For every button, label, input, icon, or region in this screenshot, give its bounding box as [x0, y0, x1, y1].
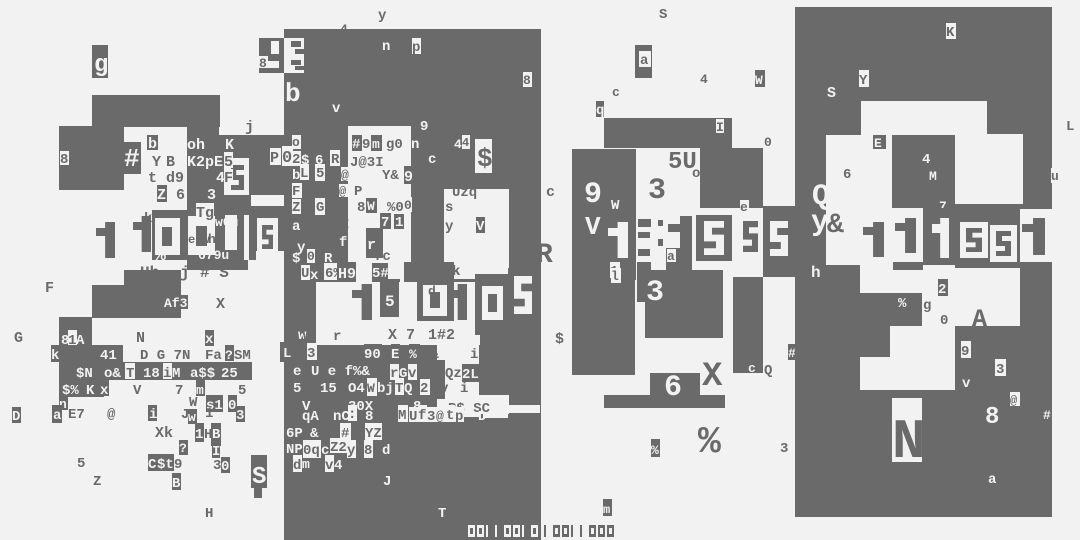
svg-text:%: %	[698, 421, 721, 464]
svg-text:S: S	[252, 464, 266, 491]
svg-text:R: R	[331, 152, 340, 168]
svg-text:#: #	[1043, 408, 1051, 423]
svg-text:G: G	[316, 200, 324, 216]
svg-text:Q: Q	[764, 363, 772, 379]
svg-text:?: ?	[225, 348, 233, 363]
svg-text:$t: $t	[157, 457, 174, 473]
svg-text:Fa: Fa	[205, 348, 222, 364]
svg-text:M: M	[172, 366, 180, 382]
svg-text:S: S	[827, 85, 836, 102]
svg-text:3: 3	[427, 409, 435, 425]
svg-text:%: %	[898, 296, 907, 312]
svg-text:3: 3	[648, 174, 666, 208]
svg-text:m: m	[603, 503, 610, 517]
svg-text:?: ?	[179, 441, 187, 456]
svg-text:0: 0	[764, 135, 772, 150]
svg-text:4: 4	[334, 458, 342, 474]
svg-text:K: K	[946, 25, 955, 41]
svg-text:v: v	[962, 376, 971, 392]
svg-text:8: 8	[357, 200, 365, 216]
svg-text:Z: Z	[93, 474, 101, 490]
svg-text:6: 6	[340, 201, 348, 217]
svg-text:SM: SM	[234, 348, 251, 364]
svg-text:H9: H9	[338, 266, 356, 283]
svg-text:3: 3	[207, 187, 216, 204]
svg-text:x: x	[205, 332, 214, 348]
svg-text:f: f	[418, 408, 426, 424]
svg-text:R: R	[536, 240, 553, 271]
svg-text:T: T	[395, 381, 403, 397]
svg-text:G: G	[14, 330, 23, 347]
svg-text:b: b	[148, 136, 157, 153]
svg-text:j: j	[245, 119, 254, 136]
svg-text:$: $	[555, 331, 564, 348]
svg-text:Z: Z	[157, 187, 166, 204]
svg-text:@: @	[107, 407, 116, 423]
svg-text:o: o	[692, 166, 700, 182]
svg-text:8: 8	[259, 56, 267, 71]
svg-text:B: B	[212, 427, 221, 443]
svg-text:y: y	[378, 8, 387, 24]
svg-text:D G 7N: D G 7N	[140, 348, 190, 364]
svg-text:g: g	[94, 52, 108, 79]
svg-text:q: q	[596, 103, 604, 119]
svg-text:W: W	[367, 381, 375, 396]
svg-text:9: 9	[404, 169, 413, 186]
svg-text:u: u	[1051, 169, 1059, 184]
svg-text:i: i	[460, 381, 468, 397]
svg-text:c: c	[748, 361, 756, 376]
svg-text:j: j	[180, 264, 190, 282]
svg-text:5: 5	[316, 166, 324, 182]
svg-text:V: V	[585, 212, 601, 242]
svg-text:n: n	[411, 137, 419, 153]
svg-text:K: K	[86, 383, 95, 399]
svg-text:5: 5	[238, 383, 246, 399]
svg-text:y: y	[347, 443, 356, 459]
svg-text:oh: oh	[187, 137, 205, 154]
svg-text:4: 4	[462, 136, 469, 150]
svg-text:Xk: Xk	[155, 425, 173, 442]
svg-text:L: L	[300, 166, 308, 182]
svg-text:@: @	[339, 185, 346, 199]
svg-text:F: F	[224, 170, 233, 187]
svg-text:1: 1	[195, 427, 203, 443]
svg-text:1#2: 1#2	[428, 327, 455, 344]
svg-text:7: 7	[488, 295, 496, 310]
svg-text:i: i	[470, 347, 478, 363]
svg-text:r: r	[533, 330, 541, 346]
svg-text:3: 3	[780, 441, 788, 457]
svg-text:18: 18	[143, 366, 160, 382]
svg-text:h: h	[811, 264, 821, 282]
svg-text:p: p	[455, 409, 463, 425]
svg-text:V: V	[133, 383, 142, 399]
svg-text:15: 15	[320, 381, 337, 397]
svg-text:@: @	[1010, 394, 1017, 408]
svg-text:0: 0	[221, 459, 229, 475]
svg-text:Z: Z	[355, 346, 363, 362]
svg-text:d: d	[428, 284, 436, 299]
svg-text:X: X	[702, 358, 723, 396]
svg-text:%: %	[409, 347, 417, 362]
svg-text:A: A	[972, 305, 987, 334]
svg-text:N: N	[136, 330, 145, 347]
svg-text:d: d	[382, 443, 390, 459]
svg-text::: :	[348, 407, 356, 423]
svg-text:6: 6	[176, 187, 185, 204]
svg-text:3: 3	[236, 408, 244, 424]
svg-text:0: 0	[282, 149, 292, 168]
svg-text:a: a	[53, 408, 62, 424]
svg-text:c: c	[428, 152, 436, 168]
svg-text:P: P	[354, 184, 362, 200]
svg-text:e: e	[740, 200, 748, 215]
svg-text:&: &	[310, 426, 319, 442]
svg-text:C: C	[148, 457, 157, 473]
svg-text:4: 4	[454, 137, 462, 152]
svg-text:B: B	[166, 154, 175, 171]
svg-text:t: t	[446, 408, 454, 424]
svg-text:N: N	[892, 410, 926, 474]
svg-text:4: 4	[340, 22, 348, 37]
svg-text:8: 8	[985, 404, 999, 431]
svg-text:m: m	[302, 457, 310, 472]
svg-text:a: a	[988, 472, 997, 488]
svg-text:h: h	[208, 232, 216, 247]
svg-text:a: a	[640, 53, 649, 69]
svg-text:d9: d9	[166, 170, 184, 187]
svg-text:T: T	[438, 506, 446, 522]
svg-text:B: B	[172, 476, 181, 492]
svg-text:6: 6	[843, 167, 851, 183]
svg-text:#: #	[352, 137, 360, 153]
svg-text:0: 0	[404, 198, 412, 213]
svg-text:k: k	[452, 264, 460, 280]
svg-text:9: 9	[174, 457, 182, 473]
svg-text:679u: 679u	[198, 248, 229, 263]
svg-text:H: H	[205, 506, 213, 522]
svg-text:3: 3	[996, 362, 1004, 378]
svg-text:$: $	[292, 251, 300, 267]
svg-text:T: T	[126, 366, 134, 382]
svg-text:M: M	[929, 169, 937, 184]
svg-text:w6u: w6u	[215, 215, 238, 230]
svg-text:m: m	[372, 137, 380, 152]
svg-text:P: P	[270, 150, 279, 167]
svg-text:$: $	[477, 144, 493, 174]
svg-text:a: a	[667, 249, 675, 264]
svg-text:Qz: Qz	[445, 366, 462, 382]
svg-text:Y: Y	[152, 154, 161, 171]
svg-text:5: 5	[385, 293, 395, 311]
svg-text:n: n	[382, 39, 390, 55]
svg-text:I: I	[341, 217, 349, 233]
svg-text:v: v	[332, 101, 341, 117]
svg-text:t: t	[148, 170, 157, 187]
svg-text:$N: $N	[76, 366, 93, 382]
svg-text:8: 8	[365, 409, 373, 425]
svg-text:e: e	[293, 364, 301, 380]
svg-text:L: L	[1066, 119, 1074, 135]
svg-text:y: y	[445, 219, 454, 235]
svg-text:E7: E7	[68, 407, 85, 423]
svg-text:i: i	[149, 407, 157, 423]
svg-text:f: f	[339, 235, 347, 251]
svg-text:W: W	[367, 199, 375, 214]
svg-text:41: 41	[100, 348, 117, 364]
svg-text:#: #	[124, 144, 140, 174]
svg-text:qA: qA	[302, 409, 319, 425]
svg-text:1: 1	[395, 215, 403, 231]
svg-text:g0: g0	[386, 137, 403, 153]
svg-text:a: a	[480, 381, 489, 397]
svg-text:8: 8	[523, 73, 531, 88]
svg-text:0: 0	[940, 313, 948, 329]
svg-text:v: v	[408, 366, 417, 382]
svg-text:d: d	[293, 458, 301, 474]
svg-text:4: 4	[922, 152, 930, 168]
svg-text:YZ: YZ	[365, 426, 382, 442]
svg-text:9: 9	[420, 119, 428, 135]
svg-text:w: w	[303, 329, 312, 345]
svg-text:s: s	[445, 200, 453, 216]
svg-text:F: F	[45, 280, 54, 297]
svg-text:L: L	[283, 346, 291, 362]
svg-text:c: c	[546, 184, 555, 201]
svg-text:X: X	[216, 296, 225, 313]
svg-text:bj: bj	[377, 381, 394, 397]
svg-text:K2pE: K2pE	[187, 154, 223, 171]
svg-text:5: 5	[224, 154, 233, 171]
svg-text:x: x	[310, 268, 319, 284]
svg-text:S: S	[659, 7, 667, 23]
svg-text:5#: 5#	[372, 266, 389, 282]
svg-text:5: 5	[77, 456, 85, 472]
svg-text:Uzq: Uzq	[452, 185, 477, 201]
svg-text:# S: # S	[200, 264, 229, 282]
svg-text:4: 4	[700, 72, 708, 87]
svg-text:Y: Y	[859, 73, 868, 89]
svg-text:Y&: Y&	[382, 168, 399, 184]
svg-text:7: 7	[175, 383, 183, 399]
svg-text:O4: O4	[348, 381, 365, 397]
svg-text:@: @	[436, 409, 444, 424]
svg-text:F: F	[292, 184, 300, 200]
svg-text:5: 5	[293, 381, 301, 397]
svg-text:p: p	[412, 40, 420, 56]
svg-text:i: i	[163, 366, 171, 382]
svg-text:&: &	[827, 210, 844, 241]
svg-text:1: 1	[205, 406, 213, 422]
svg-text:Z2: Z2	[330, 440, 347, 456]
svg-text:W: W	[189, 395, 198, 411]
svg-text:g: g	[923, 298, 931, 314]
svg-text:V: V	[476, 219, 485, 235]
svg-text:Af3: Af3	[164, 296, 188, 311]
svg-text:I: I	[716, 120, 724, 135]
svg-text:3: 3	[307, 346, 315, 362]
svg-text:2: 2	[938, 282, 946, 298]
svg-text:U: U	[409, 409, 417, 425]
svg-text:Z: Z	[292, 200, 300, 216]
svg-text:K: K	[225, 137, 234, 154]
svg-text:@: @	[341, 168, 349, 183]
svg-text:v: v	[440, 381, 449, 397]
svg-text:2: 2	[420, 381, 428, 397]
svg-text:U: U	[301, 266, 309, 282]
svg-text:x: x	[100, 383, 109, 399]
svg-text:9: 9	[584, 178, 602, 212]
svg-text:a$$: a$$	[190, 366, 215, 382]
svg-text:6P: 6P	[286, 426, 303, 442]
svg-text:Q: Q	[404, 381, 412, 397]
svg-text:%: %	[651, 443, 659, 458]
svg-text:w: w	[188, 410, 196, 425]
svg-text:M: M	[398, 408, 406, 424]
svg-text:%: %	[155, 246, 166, 266]
svg-text:9: 9	[362, 137, 370, 153]
svg-text:J@3I: J@3I	[350, 155, 384, 171]
svg-text:o: o	[292, 135, 300, 150]
svg-text:r: r	[333, 346, 341, 362]
svg-text:r: r	[333, 329, 341, 345]
svg-text:o&: o&	[104, 366, 121, 382]
svg-text:b: b	[285, 79, 301, 109]
svg-text:D: D	[12, 409, 20, 425]
svg-text:W: W	[611, 198, 620, 214]
svg-text:25: 25	[221, 366, 238, 382]
svg-text:U e f%&: U e f%&	[311, 364, 370, 380]
svg-text:6: 6	[664, 371, 682, 405]
svg-text:E: E	[874, 136, 882, 151]
svg-text:k: k	[51, 348, 59, 364]
svg-text:l: l	[611, 269, 619, 284]
svg-text:#: #	[788, 346, 796, 361]
svg-text:0: 0	[307, 249, 315, 264]
svg-text:X 7: X 7	[388, 327, 415, 344]
svg-text:3: 3	[646, 276, 664, 310]
svg-text:c: c	[612, 85, 620, 100]
svg-text:W: W	[755, 73, 763, 88]
svg-text:8: 8	[364, 443, 372, 459]
svg-text:v: v	[325, 458, 334, 474]
svg-text:J: J	[383, 474, 391, 490]
svg-text:8: 8	[60, 152, 68, 168]
svg-text:a: a	[292, 219, 301, 235]
svg-text:Tg: Tg	[196, 205, 214, 222]
svg-text:9: 9	[961, 344, 969, 360]
